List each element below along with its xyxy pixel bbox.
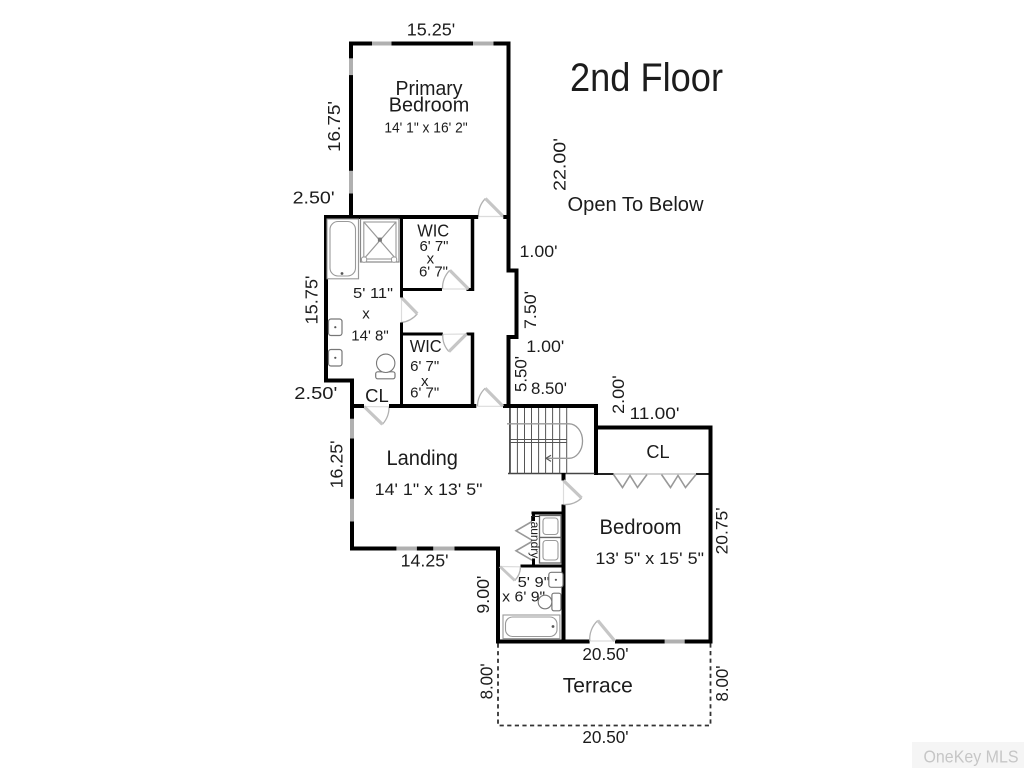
svg-text:Landing: Landing xyxy=(387,447,458,470)
svg-text:2nd Floor: 2nd Floor xyxy=(570,56,723,100)
svg-text:11.00': 11.00' xyxy=(630,404,680,423)
svg-text:Bedroom: Bedroom xyxy=(600,516,682,539)
svg-text:Bedroom: Bedroom xyxy=(389,94,470,117)
svg-text:5' 11": 5' 11" xyxy=(353,285,393,302)
svg-text:1.00': 1.00' xyxy=(526,337,564,356)
svg-text:16.25': 16.25' xyxy=(327,440,347,488)
svg-text:x: x xyxy=(362,306,370,323)
svg-text:14.25': 14.25' xyxy=(401,551,449,571)
svg-text:8.00': 8.00' xyxy=(477,663,497,699)
svg-text:15.75': 15.75' xyxy=(302,276,322,325)
svg-text:14' 1" x 13' 5": 14' 1" x 13' 5" xyxy=(375,480,483,499)
svg-text:2.00': 2.00' xyxy=(609,375,628,414)
svg-text:14' 1" x 16' 2": 14' 1" x 16' 2" xyxy=(384,120,467,137)
svg-text:2.50': 2.50' xyxy=(294,383,337,403)
svg-text:Terrace: Terrace xyxy=(563,675,633,698)
svg-text:CL: CL xyxy=(646,442,669,462)
svg-text:6' 7": 6' 7" xyxy=(419,264,448,281)
svg-text:8.00': 8.00' xyxy=(712,666,732,702)
svg-text:CL: CL xyxy=(365,386,389,406)
svg-text:5.50': 5.50' xyxy=(511,356,530,392)
svg-text:1.00': 1.00' xyxy=(520,242,558,261)
svg-text:14' 8": 14' 8" xyxy=(351,328,388,345)
svg-text:20.75': 20.75' xyxy=(713,507,732,554)
svg-text:2.50': 2.50' xyxy=(293,187,335,207)
svg-text:Open To Below: Open To Below xyxy=(568,193,704,216)
svg-text:6' 7": 6' 7" xyxy=(410,385,439,402)
svg-text:20.50': 20.50' xyxy=(582,644,628,664)
svg-text:WIC: WIC xyxy=(410,336,442,356)
svg-text:Laundry: Laundry xyxy=(528,515,542,558)
svg-text:13' 5" x 15' 5": 13' 5" x 15' 5" xyxy=(595,549,704,568)
svg-text:15.25': 15.25' xyxy=(407,20,456,40)
svg-text:16.75': 16.75' xyxy=(324,101,344,152)
svg-text:22.00': 22.00' xyxy=(550,138,570,191)
svg-text:OneKey MLS: OneKey MLS xyxy=(924,747,1019,767)
svg-text:9.00': 9.00' xyxy=(473,576,493,614)
svg-text:20.50': 20.50' xyxy=(582,727,628,747)
svg-text:7.50': 7.50' xyxy=(521,291,540,329)
svg-text:8.50': 8.50' xyxy=(531,379,567,398)
